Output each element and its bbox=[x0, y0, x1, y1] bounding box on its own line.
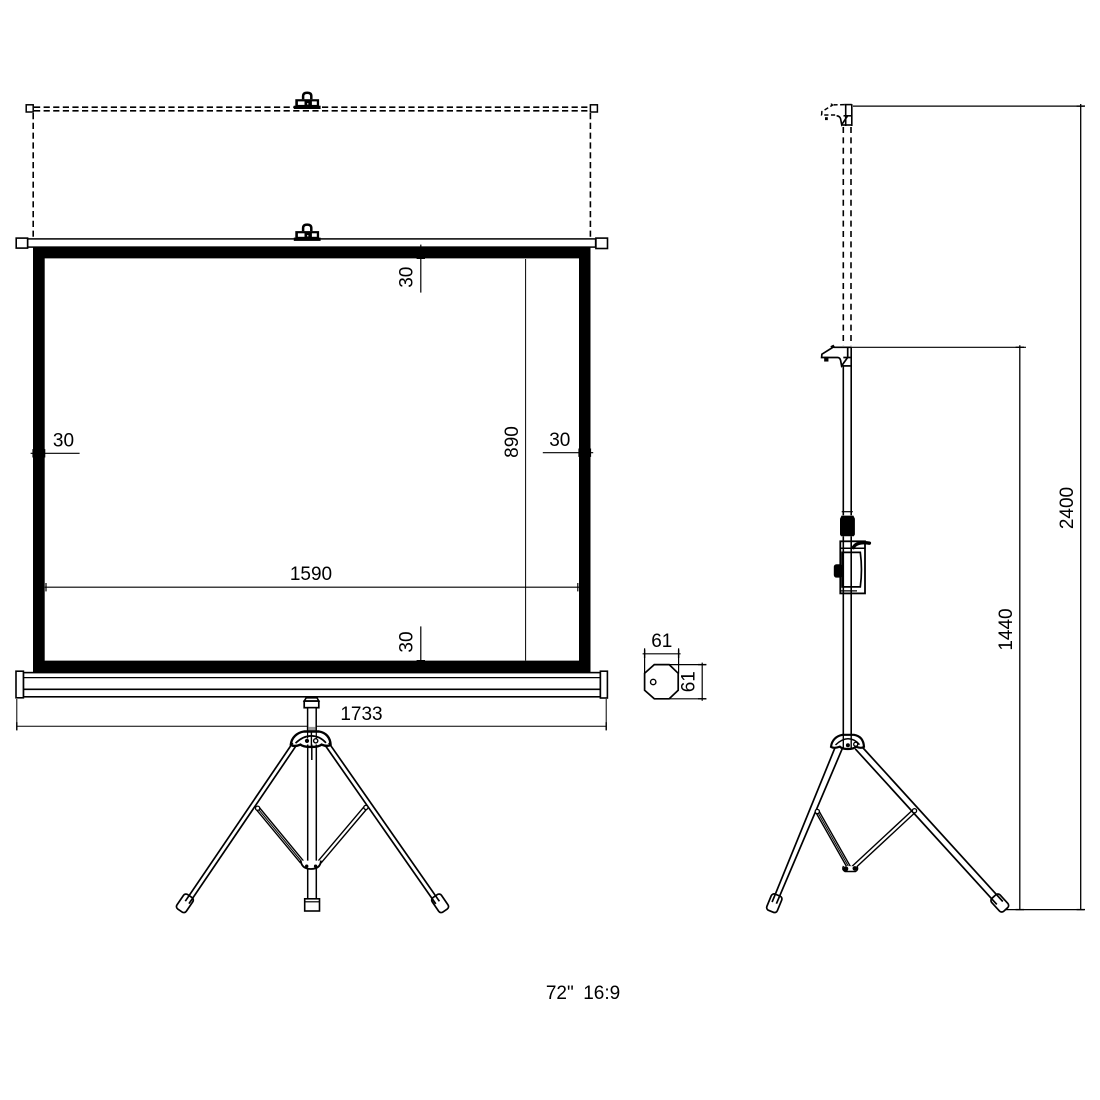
svg-text:890: 890 bbox=[502, 426, 523, 458]
svg-text:72" 16:9: 72" 16:9 bbox=[546, 983, 620, 1004]
svg-text:2400: 2400 bbox=[1057, 487, 1078, 529]
svg-text:1590: 1590 bbox=[290, 564, 332, 585]
svg-text:30: 30 bbox=[397, 267, 418, 288]
svg-text:61: 61 bbox=[651, 631, 672, 652]
svg-text:1440: 1440 bbox=[996, 608, 1017, 650]
svg-text:30: 30 bbox=[53, 430, 74, 451]
svg-text:30: 30 bbox=[549, 430, 570, 451]
svg-text:30: 30 bbox=[396, 631, 417, 652]
svg-text:1733: 1733 bbox=[340, 704, 382, 725]
svg-text:61: 61 bbox=[679, 671, 700, 692]
